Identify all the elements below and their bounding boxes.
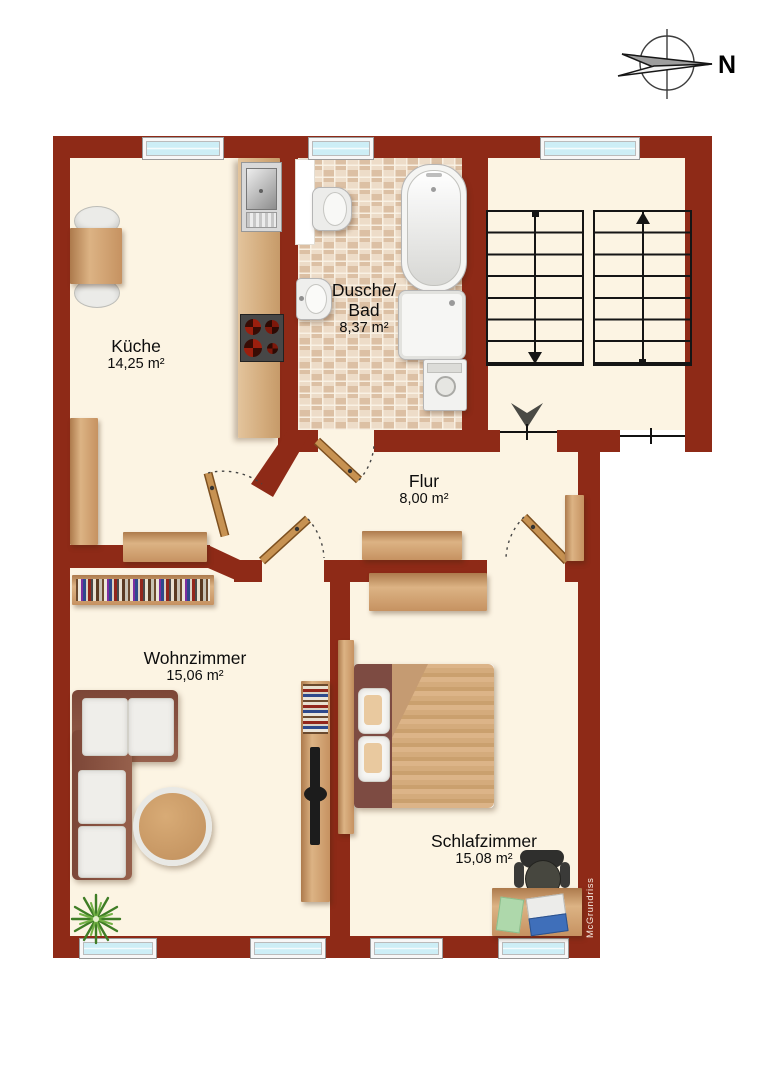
toilet-seat — [323, 192, 347, 226]
wall-hall-top-mid — [374, 430, 500, 452]
window-glass — [374, 942, 439, 955]
washbasin-faucet — [299, 296, 304, 301]
compass-needle — [618, 64, 712, 76]
sofa-cushion — [78, 770, 126, 824]
tv-board — [301, 681, 330, 902]
window-glass — [502, 942, 565, 955]
room-name: Wohnzimmer — [123, 648, 267, 668]
stair-walkline — [642, 212, 644, 364]
hall-tall-cabinet — [70, 418, 98, 545]
bed-pillow — [358, 736, 390, 782]
laptop — [526, 894, 567, 935]
bed-pillow-inner — [364, 743, 382, 773]
room-name: Dusche/ — [310, 280, 418, 300]
stair-arrow-down-icon — [528, 352, 542, 364]
window-kitchen — [142, 137, 224, 160]
watermark-text: McGrundriss — [585, 878, 596, 938]
room-label-wohnzimmer: Wohnzimmer 15,06 m² — [123, 648, 267, 685]
coffee-table — [133, 787, 212, 866]
room-label-flur: Flur 8,00 m² — [370, 471, 478, 508]
compass-icon: N — [612, 16, 752, 108]
window-glass — [146, 141, 220, 156]
bed — [354, 664, 494, 808]
bathtub-drain — [431, 187, 436, 192]
window-glass — [254, 942, 322, 955]
burner — [245, 319, 261, 335]
washing-machine — [423, 359, 467, 411]
burner — [267, 343, 278, 354]
washing-machine-door — [435, 376, 456, 397]
hall-sideboard — [362, 531, 462, 560]
bathtub-faucet — [426, 173, 442, 177]
entrance-door-tick — [526, 424, 528, 440]
window-bedroom-left — [370, 938, 443, 959]
window-glass — [312, 141, 370, 156]
washing-machine-panel — [427, 363, 462, 373]
bed-headboard — [338, 640, 354, 834]
window-glass — [544, 141, 636, 156]
laptop-keyboard — [528, 913, 568, 936]
stove — [240, 314, 284, 362]
wardrobe — [369, 573, 487, 611]
hall-alcove-sideboard — [123, 532, 207, 562]
neighbour-door-line — [620, 435, 685, 437]
burner — [265, 320, 279, 334]
wall-hall-top-left-stub — [294, 430, 318, 452]
shower-drain — [449, 300, 455, 306]
plant-icon — [70, 893, 122, 945]
room-name: Flur — [370, 471, 478, 491]
toilet — [312, 187, 352, 231]
window-stairwell — [540, 137, 640, 160]
desk — [492, 888, 582, 936]
sofa-cushion — [128, 698, 174, 756]
hall-right-cabinet — [565, 495, 584, 561]
room-name: Schlafzimmer — [412, 831, 556, 851]
stair-walkline-start — [639, 359, 646, 364]
burner — [244, 339, 262, 357]
room-area: 15,08 m² — [412, 851, 556, 868]
floorplan-page: Küche 14,25 m² Dusche/ Bad 8,37 m² Flur … — [0, 0, 768, 1080]
compass-north-label: N — [718, 51, 736, 79]
wall-hall-bottom-a — [234, 560, 262, 582]
wall-hall-bottom-c — [565, 560, 600, 582]
sofa-cushion — [82, 698, 128, 756]
room-area: 8,37 m² — [310, 320, 418, 337]
window-bath — [308, 137, 374, 160]
room-label-bad: Dusche/ Bad 8,37 m² — [310, 280, 418, 337]
stair-flight-down — [486, 210, 584, 366]
tv-board-books — [303, 684, 328, 734]
stair-walkline-start — [532, 212, 539, 217]
room-area: 8,00 m² — [370, 491, 478, 508]
sink-drain — [259, 189, 263, 193]
neighbour-door-tick — [650, 428, 652, 444]
kitchen-sink — [241, 162, 282, 232]
kitchen-table — [70, 228, 122, 284]
window-living-right — [250, 938, 326, 959]
room-area: 15,06 m² — [123, 668, 267, 685]
stair-flight-up — [593, 210, 692, 366]
wall-hall-corner-block — [557, 430, 620, 452]
room-label-kueche: Küche 14,25 m² — [76, 336, 196, 373]
tv-stand — [304, 786, 327, 802]
desk-paper — [496, 896, 524, 933]
sofa-cushion — [78, 826, 126, 878]
room-area: 14,25 m² — [76, 356, 196, 373]
bathtub — [401, 164, 467, 292]
room-name: Bad — [310, 300, 418, 320]
bed-pillow-inner — [364, 695, 382, 725]
office-chair-armrest — [560, 862, 570, 888]
bookshelf-books — [76, 579, 210, 601]
entrance-door-line — [500, 431, 557, 433]
window-bedroom-right — [498, 938, 569, 959]
bookshelf — [72, 575, 214, 605]
stair-walkline — [534, 212, 536, 364]
sink-drainboard — [246, 212, 277, 228]
stair-arrow-up-icon — [636, 212, 650, 224]
bed-pillow — [358, 688, 390, 734]
room-name: Küche — [76, 336, 196, 356]
room-label-schlafzimmer: Schlafzimmer 15,08 m² — [412, 831, 556, 868]
